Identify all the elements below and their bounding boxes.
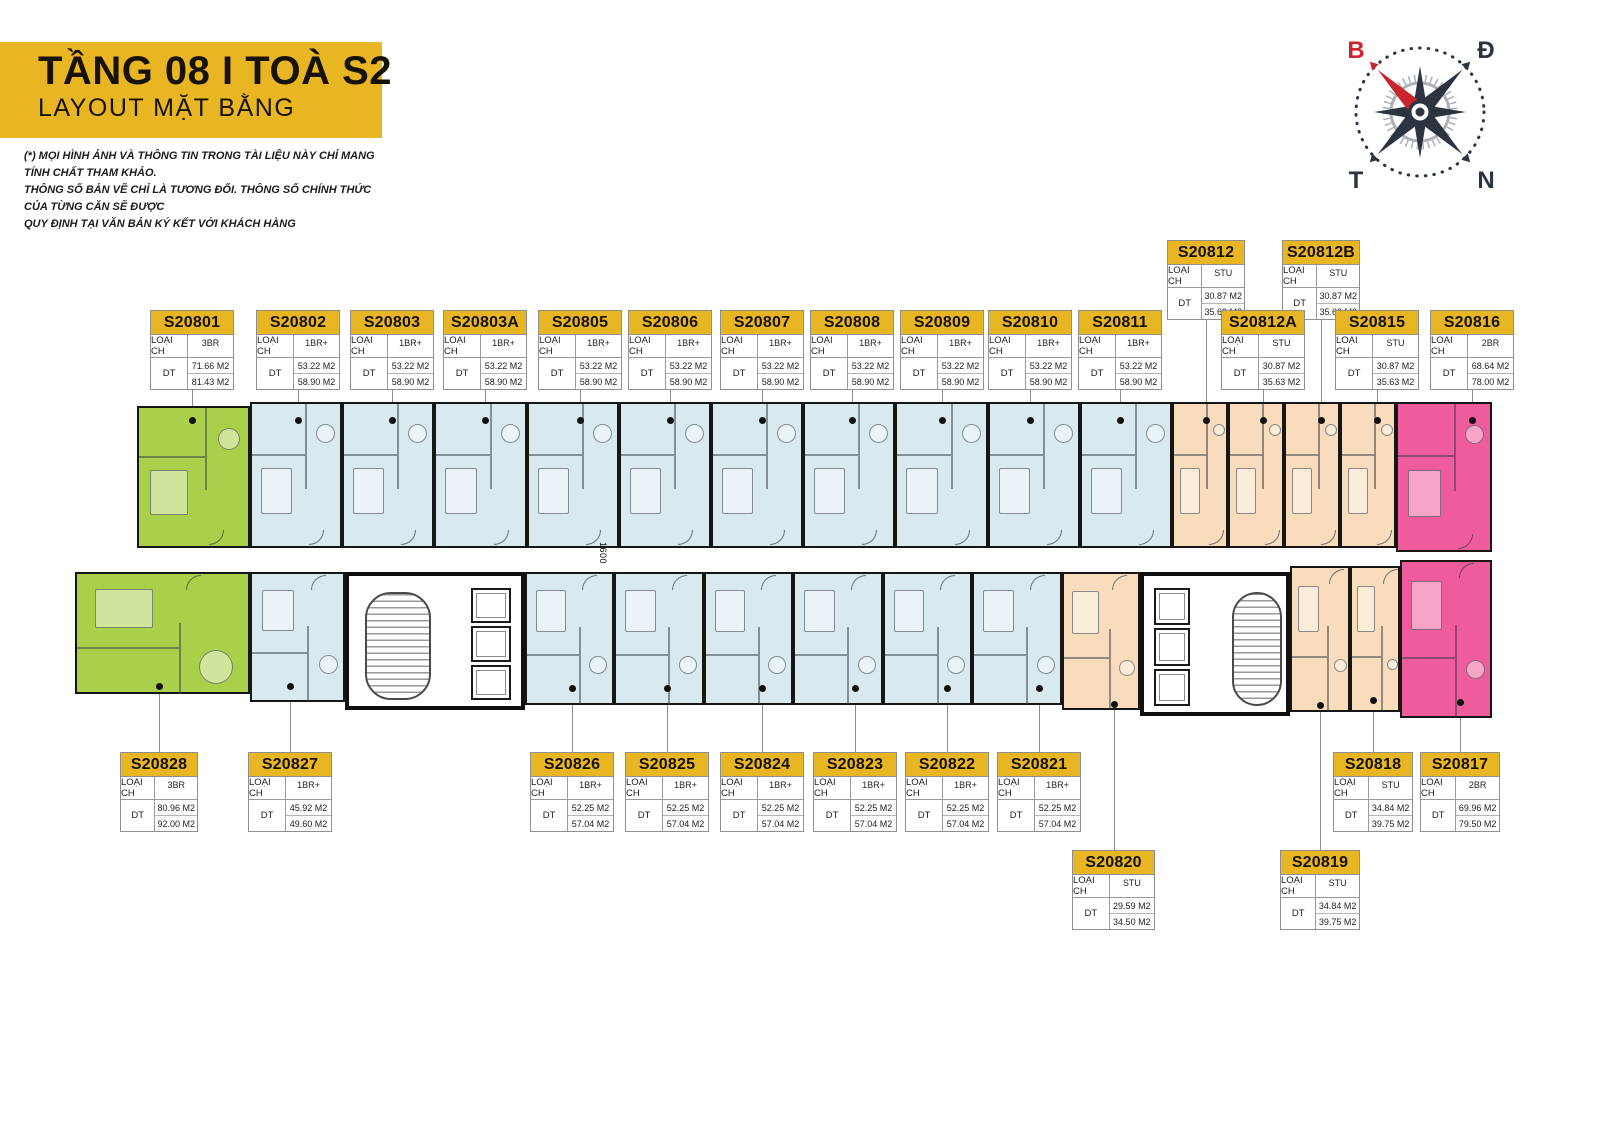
- unit-area-value: 57.04 M2: [568, 815, 613, 831]
- table-icon: [589, 656, 607, 674]
- unit-type-row: LOẠI CH1BR+: [906, 777, 988, 799]
- leader-dot: [1111, 701, 1118, 708]
- unit-card-S20812A: S20812ALOẠI CHSTUDT30.87 M235.63 M2: [1221, 310, 1305, 390]
- interior-wall: [252, 454, 305, 456]
- unit-area-value: 30.87 M2: [1373, 358, 1418, 373]
- unit-area-value: 57.04 M2: [1035, 815, 1080, 831]
- disclaimer-line: (*) MỌI HÌNH ẢNH VÀ THÔNG TIN TRONG TÀI …: [24, 148, 394, 182]
- unit-id: S20818: [1334, 753, 1412, 777]
- leader-dot: [759, 417, 766, 424]
- leader-line: [159, 686, 160, 752]
- plan-unit-S20824: [704, 572, 793, 705]
- unit-area-value: 30.87 M2: [1202, 288, 1244, 303]
- plan-unit-S20815: [1340, 402, 1396, 548]
- table-icon: [199, 650, 233, 684]
- leader-dot: [1370, 697, 1377, 704]
- unit-area-value: 52.25 M2: [663, 800, 708, 815]
- unit-area-values: 71.66 M281.43 M2: [188, 358, 233, 389]
- interior-wall: [858, 404, 860, 489]
- plan-unit-S20811: [1080, 402, 1172, 548]
- unit-area-value: 78.00 M2: [1468, 373, 1513, 389]
- plan-unit-S20812A: [1228, 402, 1284, 548]
- unit-area-value: 79.50 M2: [1456, 815, 1499, 831]
- bed-icon: [906, 468, 938, 514]
- unit-area-value: 58.90 M2: [1026, 373, 1071, 389]
- unit-area-value: 92.00 M2: [155, 815, 197, 831]
- unit-type-value: 1BR+: [1035, 777, 1080, 792]
- unit-area-label: DT: [1168, 288, 1202, 319]
- elevator-icon: [1154, 628, 1190, 665]
- plan-unit-S20812B: [1284, 402, 1340, 548]
- table-icon: [685, 424, 704, 443]
- unit-type-row: LOẠI CH2BR: [1431, 335, 1513, 357]
- unit-area-label: DT: [1336, 358, 1373, 389]
- leader-dot: [1374, 417, 1381, 424]
- unit-id: S20823: [814, 753, 896, 777]
- interior-wall: [616, 654, 668, 656]
- unit-card-S20825: S20825LOẠI CH1BR+DT52.25 M257.04 M2: [625, 752, 709, 832]
- table-icon: [777, 424, 796, 443]
- interior-wall: [1286, 454, 1318, 456]
- unit-area-value: 34.50 M2: [1110, 913, 1154, 929]
- interior-wall: [706, 654, 758, 656]
- unit-card-S20805: S20805LOẠI CH1BR+DT53.22 M258.90 M2: [538, 310, 622, 390]
- unit-area-values: 53.22 M258.90 M2: [388, 358, 433, 389]
- interior-wall: [1064, 657, 1109, 659]
- unit-type-row: LOẠI CH1BR+: [531, 777, 613, 799]
- unit-area-label: DT: [1431, 358, 1468, 389]
- unit-area-value: 53.22 M2: [481, 358, 526, 373]
- unit-card-S20816: S20816LOẠI CH2BRDT68.64 M278.00 M2: [1430, 310, 1514, 390]
- unit-area-row: DT53.22 M258.90 M2: [1079, 357, 1161, 389]
- unit-type-label: LOẠI CH: [1073, 875, 1110, 897]
- unit-area-label: DT: [1079, 358, 1116, 389]
- plan-unit-S20822: [883, 572, 972, 705]
- unit-area-row: DT53.22 M258.90 M2: [539, 357, 621, 389]
- unit-area-values: 53.22 M258.90 M2: [758, 358, 803, 389]
- unit-area-value: 34.84 M2: [1369, 800, 1412, 815]
- unit-area-label: DT: [1281, 898, 1316, 929]
- unit-type-label: LOẠI CH: [1431, 335, 1468, 357]
- door-arc-icon: [1458, 534, 1473, 549]
- unit-type-value: 1BR+: [576, 335, 621, 350]
- interior-wall: [1352, 656, 1381, 658]
- bed-icon: [1072, 591, 1099, 634]
- unit-type-row: LOẠI CH1BR+: [1079, 335, 1161, 357]
- unit-id: S20825: [626, 753, 708, 777]
- unit-area-value: 53.22 M2: [938, 358, 983, 373]
- unit-area-value: 53.22 M2: [848, 358, 893, 373]
- unit-card-S20811: S20811LOẠI CH1BR+DT53.22 M258.90 M2: [1078, 310, 1162, 390]
- table-icon: [1119, 660, 1135, 676]
- interior-wall: [179, 623, 181, 694]
- unit-area-label: DT: [531, 800, 568, 831]
- leader-dot: [156, 683, 163, 690]
- unit-area-label: DT: [626, 800, 663, 831]
- unit-area-row: DT52.25 M257.04 M2: [531, 799, 613, 831]
- leader-dot: [1457, 699, 1464, 706]
- unit-type-label: LOẠI CH: [1421, 777, 1456, 799]
- interior-wall: [1135, 404, 1137, 489]
- bed-icon: [445, 468, 477, 514]
- table-icon: [1213, 424, 1225, 436]
- unit-type-row: LOẠI CH2BR: [1421, 777, 1499, 799]
- unit-type-value: 1BR+: [568, 777, 613, 792]
- unit-type-value: STU: [1259, 335, 1304, 350]
- unit-type-value: STU: [1316, 875, 1359, 890]
- unit-type-row: LOẠI CH1BR+: [811, 335, 893, 357]
- unit-type-row: LOẠI CH1BR+: [989, 335, 1071, 357]
- unit-area-values: 80.96 M292.00 M2: [155, 800, 197, 831]
- plan-unit-S20819: [1290, 566, 1350, 712]
- unit-area-label: DT: [906, 800, 943, 831]
- leader-dot: [1117, 417, 1124, 424]
- unit-area-label: DT: [721, 358, 758, 389]
- unit-id: S20812A: [1222, 311, 1304, 335]
- door-arc-icon: [186, 575, 201, 590]
- table-icon: [1054, 424, 1073, 443]
- unit-area-value: 29.59 M2: [1110, 898, 1154, 913]
- unit-type-label: LOẠI CH: [989, 335, 1026, 357]
- unit-area-row: DT53.22 M258.90 M2: [444, 357, 526, 389]
- unit-area-row: DT30.87 M235.63 M2: [1336, 357, 1418, 389]
- table-icon: [1387, 659, 1398, 670]
- unit-area-values: 53.22 M258.90 M2: [938, 358, 983, 389]
- page: TẦNG 08 I TOÀ S2 LAYOUT MẶT BẰNG (*) MỌI…: [0, 0, 1600, 1131]
- unit-type-label: LOẠI CH: [901, 335, 938, 357]
- bed-icon: [353, 468, 384, 514]
- bed-icon: [1348, 468, 1368, 514]
- unit-area-value: 57.04 M2: [758, 815, 803, 831]
- interior-wall: [713, 454, 766, 456]
- unit-area-value: 53.22 M2: [666, 358, 711, 373]
- interior-wall: [795, 654, 847, 656]
- door-arc-icon: [401, 530, 416, 545]
- unit-type-value: 1BR+: [943, 777, 988, 792]
- unit-type-row: LOẠI CH1BR+: [249, 777, 331, 799]
- unit-area-row: DT80.96 M292.00 M2: [121, 799, 197, 831]
- unit-type-row: LOẠI CH1BR+: [629, 335, 711, 357]
- unit-card-S20812B: S20812BLOẠI CHSTUDT30.87 M235.63 M2: [1282, 240, 1360, 320]
- unit-area-label: DT: [351, 358, 388, 389]
- unit-area-value: 53.22 M2: [1116, 358, 1161, 373]
- unit-area-values: 45.92 M249.60 M2: [286, 800, 331, 831]
- unit-type-row: LOẠI CHSTU: [1222, 335, 1304, 357]
- unit-area-row: DT53.22 M258.90 M2: [257, 357, 339, 389]
- unit-area-label: DT: [249, 800, 286, 831]
- table-icon: [1146, 424, 1165, 443]
- unit-area-label: DT: [901, 358, 938, 389]
- interior-wall: [885, 654, 937, 656]
- table-icon: [1334, 659, 1347, 672]
- interior-wall: [307, 626, 309, 701]
- bed-icon: [1357, 586, 1375, 632]
- unit-type-row: LOẠI CH1BR+: [998, 777, 1080, 799]
- bed-icon: [538, 468, 569, 514]
- unit-type-value: 1BR+: [286, 777, 331, 792]
- interior-wall: [766, 404, 768, 489]
- unit-card-S20828: S20828LOẠI CH3BRDT80.96 M292.00 M2: [120, 752, 198, 832]
- unit-area-label: DT: [811, 358, 848, 389]
- unit-card-S20817: S20817LOẠI CH2BRDT69.96 M279.50 M2: [1420, 752, 1500, 832]
- unit-area-value: 57.04 M2: [943, 815, 988, 831]
- unit-area-value: 80.96 M2: [155, 800, 197, 815]
- table-icon: [1466, 660, 1485, 679]
- interior-wall: [1402, 657, 1455, 659]
- leader-dot: [577, 417, 584, 424]
- compass-rose-icon: B Đ T N: [1330, 22, 1510, 202]
- unit-type-value: 2BR: [1456, 777, 1499, 792]
- unit-area-row: DT53.22 M258.90 M2: [811, 357, 893, 389]
- elevator-icon: [471, 665, 511, 700]
- unit-area-values: 69.96 M279.50 M2: [1456, 800, 1499, 831]
- unit-card-S20806: S20806LOẠI CH1BR+DT53.22 M258.90 M2: [628, 310, 712, 390]
- door-arc-icon: [311, 575, 326, 590]
- unit-area-value: 35.63 M2: [1373, 373, 1418, 389]
- unit-type-label: LOẠI CH: [629, 335, 666, 357]
- unit-card-S20815: S20815LOẠI CHSTUDT30.87 M235.63 M2: [1335, 310, 1419, 390]
- unit-area-value: 53.22 M2: [1026, 358, 1071, 373]
- unit-type-label: LOẠI CH: [1281, 875, 1316, 897]
- unit-area-row: DT69.96 M279.50 M2: [1421, 799, 1499, 831]
- table-icon: [1037, 656, 1055, 674]
- disclaimer-line: THÔNG SỐ BẢN VẼ CHỈ LÀ TƯƠNG ĐỐI. THÔNG …: [24, 182, 394, 216]
- unit-area-row: DT34.84 M239.75 M2: [1334, 799, 1412, 831]
- unit-id: S20827: [249, 753, 331, 777]
- interior-wall: [1292, 656, 1327, 658]
- unit-type-label: LOẠI CH: [1222, 335, 1259, 357]
- bed-icon: [630, 468, 661, 514]
- leader-dot: [295, 417, 302, 424]
- bed-icon: [1411, 581, 1442, 630]
- unit-area-value: 39.75 M2: [1369, 815, 1412, 831]
- interior-wall: [1398, 455, 1454, 457]
- unit-type-value: 1BR+: [758, 335, 803, 350]
- door-arc-icon: [1047, 530, 1062, 545]
- plan-unit-S20810: [988, 402, 1080, 548]
- unit-type-value: STU: [1110, 875, 1154, 890]
- unit-area-value: 52.25 M2: [1035, 800, 1080, 815]
- unit-area-row: DT34.84 M239.75 M2: [1281, 897, 1359, 929]
- unit-area-values: 30.87 M235.63 M2: [1259, 358, 1304, 389]
- unit-area-row: DT53.22 M258.90 M2: [901, 357, 983, 389]
- unit-area-values: 53.22 M258.90 M2: [848, 358, 893, 389]
- unit-type-row: LOẠI CH1BR+: [814, 777, 896, 799]
- unit-id: S20820: [1073, 851, 1154, 875]
- unit-type-row: LOẠI CH3BR: [151, 335, 233, 357]
- leader-dot: [389, 417, 396, 424]
- unit-type-row: LOẠI CH1BR+: [721, 777, 803, 799]
- unit-area-values: 53.22 M258.90 M2: [1116, 358, 1161, 389]
- plan-unit-S20801: [137, 406, 250, 548]
- leader-dot: [944, 685, 951, 692]
- compass: B Đ T N: [1330, 22, 1510, 202]
- bed-icon: [1292, 468, 1312, 514]
- unit-type-value: 1BR+: [481, 335, 526, 350]
- table-icon: [1269, 424, 1281, 436]
- interior-wall: [805, 454, 858, 456]
- door-arc-icon: [582, 575, 597, 590]
- unit-card-S20818: S20818LOẠI CHSTUDT34.84 M239.75 M2: [1333, 752, 1413, 832]
- interior-wall: [1230, 454, 1262, 456]
- unit-area-row: DT52.25 M257.04 M2: [998, 799, 1080, 831]
- unit-area-value: 39.75 M2: [1316, 913, 1359, 929]
- elevator-icon: [1154, 669, 1190, 706]
- plan-unit-S20823: [793, 572, 883, 705]
- interior-wall: [139, 456, 205, 458]
- unit-area-values: 52.25 M257.04 M2: [758, 800, 803, 831]
- door-arc-icon: [1209, 530, 1224, 545]
- unit-area-value: 68.64 M2: [1468, 358, 1513, 373]
- unit-card-S20810: S20810LOẠI CH1BR+DT53.22 M258.90 M2: [988, 310, 1072, 390]
- unit-card-S20803: S20803LOẠI CH1BR+DT53.22 M258.90 M2: [350, 310, 434, 390]
- unit-area-values: 68.64 M278.00 M2: [1468, 358, 1513, 389]
- unit-area-label: DT: [151, 358, 188, 389]
- unit-area-row: DT53.22 M258.90 M2: [721, 357, 803, 389]
- unit-area-label: DT: [1222, 358, 1259, 389]
- unit-area-values: 52.25 M257.04 M2: [943, 800, 988, 831]
- unit-area-value: 58.90 M2: [481, 373, 526, 389]
- bed-icon: [1180, 468, 1200, 514]
- leader-dot: [759, 685, 766, 692]
- table-icon: [962, 424, 981, 443]
- door-arc-icon: [1030, 575, 1045, 590]
- unit-type-value: 3BR: [188, 335, 233, 350]
- door-arc-icon: [955, 530, 970, 545]
- interior-wall: [847, 627, 849, 704]
- unit-area-value: 81.43 M2: [188, 373, 233, 389]
- bed-icon: [262, 590, 294, 631]
- page-title: TẦNG 08 I TOÀ S2: [38, 51, 382, 93]
- unit-id: S20812: [1168, 241, 1244, 265]
- leader-dot: [287, 683, 294, 690]
- door-arc-icon: [494, 530, 509, 545]
- unit-type-row: LOẠI CHSTU: [1281, 875, 1359, 897]
- leader-dot: [664, 685, 671, 692]
- interior-wall: [974, 654, 1026, 656]
- compass-label-north: B: [1347, 37, 1364, 64]
- interior-wall: [674, 404, 676, 489]
- unit-id: S20801: [151, 311, 233, 335]
- unit-id: S20822: [906, 753, 988, 777]
- table-icon: [869, 424, 888, 443]
- plan-unit-S20805: [527, 402, 619, 548]
- unit-type-label: LOẠI CH: [351, 335, 388, 357]
- interior-wall: [205, 408, 207, 490]
- unit-type-label: LOẠI CH: [539, 335, 576, 357]
- interior-wall: [436, 454, 490, 456]
- unit-type-label: LOẠI CH: [257, 335, 294, 357]
- plan-unit-S20806: [619, 402, 711, 548]
- unit-area-label: DT: [257, 358, 294, 389]
- elevator-icon: [471, 588, 511, 623]
- table-icon: [319, 655, 338, 674]
- bed-icon: [625, 590, 656, 632]
- interior-wall: [77, 647, 179, 649]
- unit-type-row: LOẠI CH1BR+: [257, 335, 339, 357]
- interior-wall: [1342, 454, 1374, 456]
- unit-type-value: 1BR+: [1026, 335, 1071, 350]
- unit-area-label: DT: [1334, 800, 1369, 831]
- bed-icon: [536, 590, 566, 632]
- interior-wall: [668, 627, 670, 704]
- leader-dot: [1260, 417, 1267, 424]
- plan-unit-S20808: [803, 402, 895, 548]
- interior-wall: [1327, 626, 1329, 711]
- unit-id: S20812B: [1283, 241, 1359, 265]
- stairs-icon: [365, 592, 431, 700]
- plan-unit-S20825: [614, 572, 704, 705]
- leader-line: [1114, 704, 1115, 850]
- unit-id: S20803A: [444, 311, 526, 335]
- unit-card-S20809: S20809LOẠI CH1BR+DT53.22 M258.90 M2: [900, 310, 984, 390]
- unit-id: S20811: [1079, 311, 1161, 335]
- leader-dot: [667, 417, 674, 424]
- unit-area-values: 52.25 M257.04 M2: [1035, 800, 1080, 831]
- unit-type-value: STU: [1373, 335, 1418, 350]
- unit-type-row: LOẠI CH1BR+: [901, 335, 983, 357]
- unit-type-label: LOẠI CH: [531, 777, 568, 799]
- interior-wall: [621, 454, 674, 456]
- unit-area-row: DT52.25 M257.04 M2: [814, 799, 896, 831]
- unit-id: S20807: [721, 311, 803, 335]
- unit-id: S20808: [811, 311, 893, 335]
- unit-type-label: LOẠI CH: [249, 777, 286, 799]
- unit-area-value: 58.90 M2: [576, 373, 621, 389]
- unit-type-value: 1BR+: [848, 335, 893, 350]
- unit-type-label: LOẠI CH: [1079, 335, 1116, 357]
- bed-icon: [894, 590, 924, 632]
- plan-unit-S20827: [250, 572, 345, 702]
- unit-area-row: DT68.64 M278.00 M2: [1431, 357, 1513, 389]
- unit-area-value: 45.92 M2: [286, 800, 331, 815]
- bed-icon: [804, 590, 835, 632]
- table-icon: [858, 656, 876, 674]
- unit-id: S20803: [351, 311, 433, 335]
- unit-type-row: LOẠI CHSTU: [1334, 777, 1412, 799]
- unit-card-S20827: S20827LOẠI CH1BR+DT45.92 M249.60 M2: [248, 752, 332, 832]
- unit-area-value: 53.22 M2: [758, 358, 803, 373]
- unit-type-value: 1BR+: [294, 335, 339, 350]
- unit-type-value: 1BR+: [1116, 335, 1161, 350]
- unit-type-label: LOẠI CH: [721, 335, 758, 357]
- unit-type-value: 1BR+: [663, 777, 708, 792]
- unit-area-value: 58.90 M2: [294, 373, 339, 389]
- unit-area-value: 58.90 M2: [938, 373, 983, 389]
- unit-area-row: DT45.92 M249.60 M2: [249, 799, 331, 831]
- disclaimer: (*) MỌI HÌNH ẢNH VÀ THÔNG TIN TRONG TÀI …: [24, 148, 394, 233]
- unit-id: S20806: [629, 311, 711, 335]
- leader-dot: [189, 417, 196, 424]
- unit-type-value: 1BR+: [938, 335, 983, 350]
- unit-id: S20821: [998, 753, 1080, 777]
- door-arc-icon: [1383, 569, 1398, 584]
- bed-icon: [150, 470, 188, 515]
- interior-wall: [1109, 629, 1111, 709]
- door-arc-icon: [672, 575, 687, 590]
- unit-area-value: 49.60 M2: [286, 815, 331, 831]
- unit-type-row: LOẠI CH3BR: [121, 777, 197, 799]
- unit-area-values: 52.25 M257.04 M2: [568, 800, 613, 831]
- interior-wall: [990, 454, 1043, 456]
- door-arc-icon: [1139, 530, 1154, 545]
- unit-type-row: LOẠI CHSTU: [1168, 265, 1244, 287]
- unit-area-value: 53.22 M2: [576, 358, 621, 373]
- unit-area-value: 58.90 M2: [1116, 373, 1161, 389]
- unit-type-row: LOẠI CH1BR+: [351, 335, 433, 357]
- unit-type-row: LOẠI CHSTU: [1283, 265, 1359, 287]
- unit-id: S20809: [901, 311, 983, 335]
